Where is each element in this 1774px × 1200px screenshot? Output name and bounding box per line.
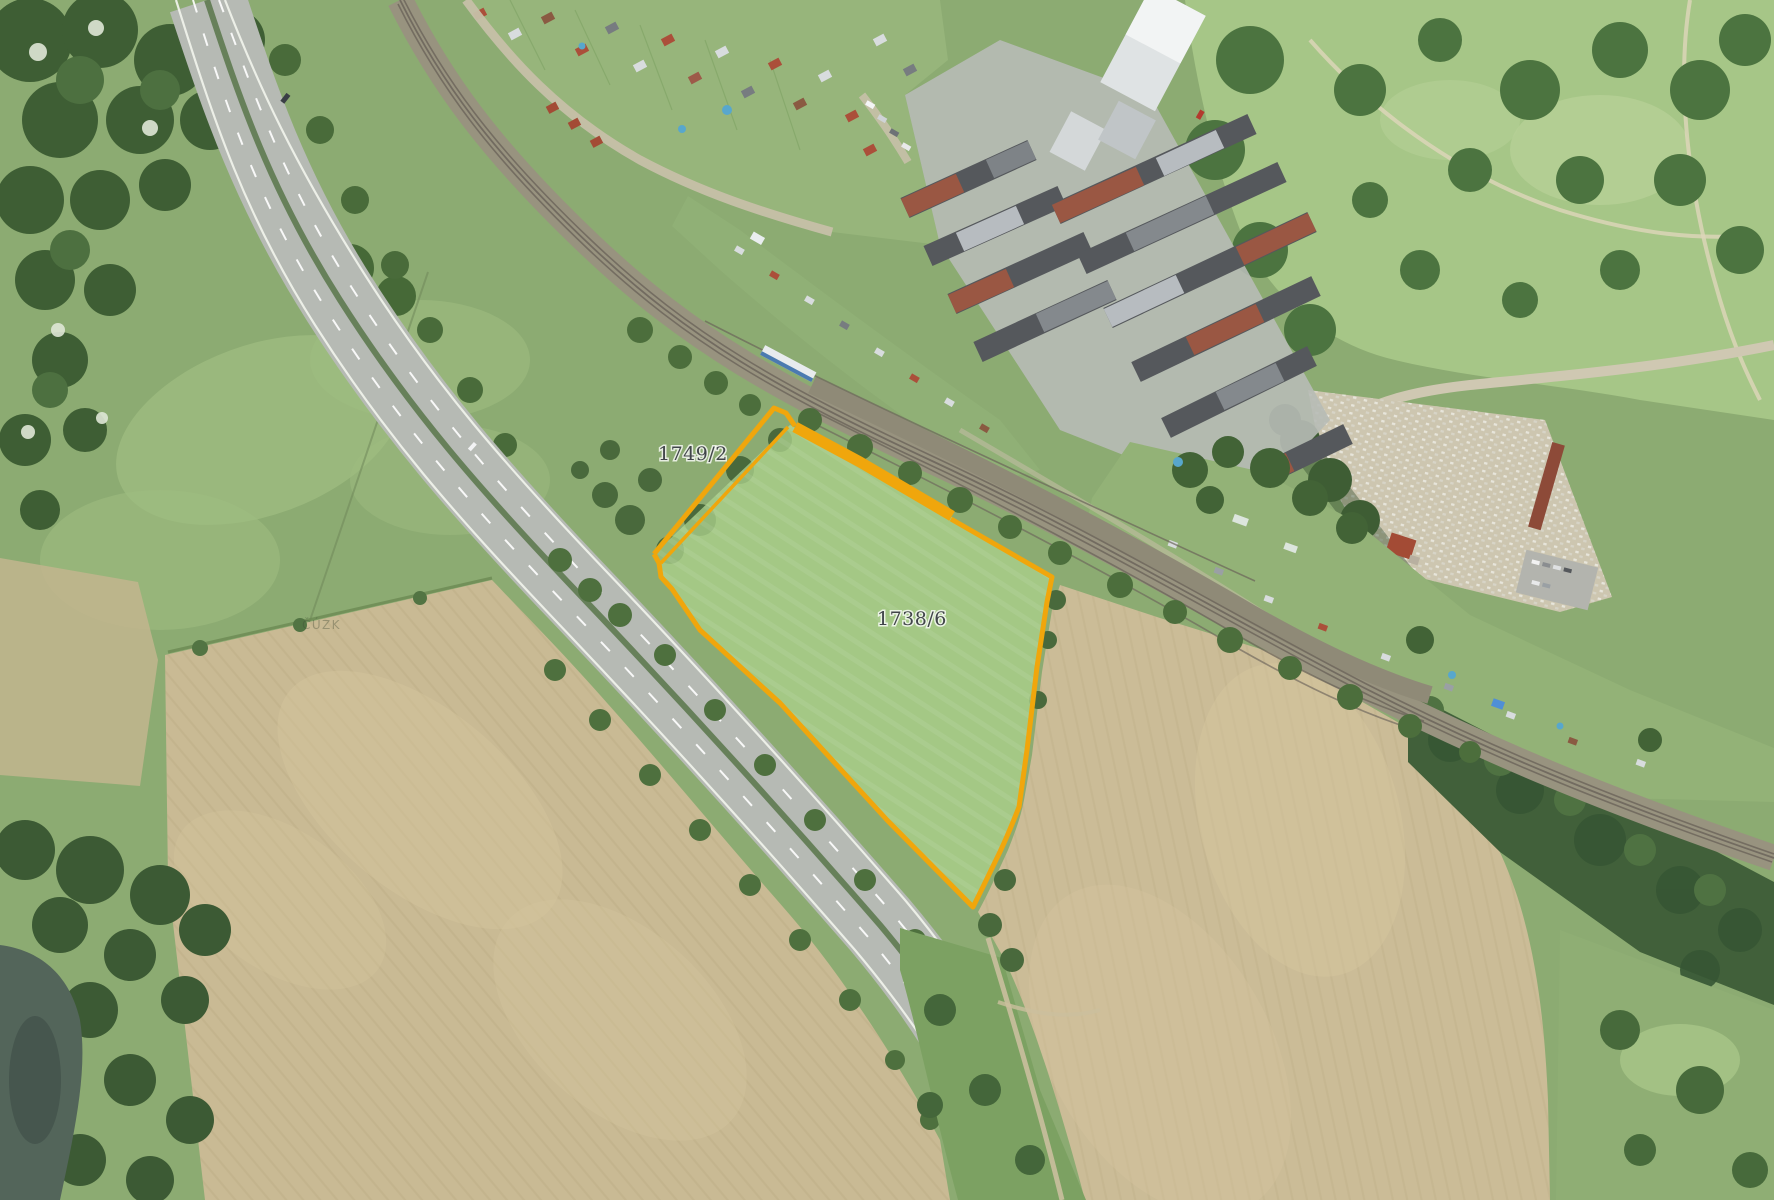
orthophoto-map: ČÚZK 1749/2 1738/6 (0, 0, 1774, 1200)
aerial-map-canvas[interactable]: ČÚZK 1749/2 1738/6 (0, 0, 1774, 1200)
highlighted-parcel-label: 1738/6 (877, 608, 947, 630)
cuzk-watermark: ČÚZK (302, 617, 341, 632)
tan-strip-left-edge (0, 558, 158, 786)
neighbor-parcel-label: 1749/2 (658, 443, 728, 465)
